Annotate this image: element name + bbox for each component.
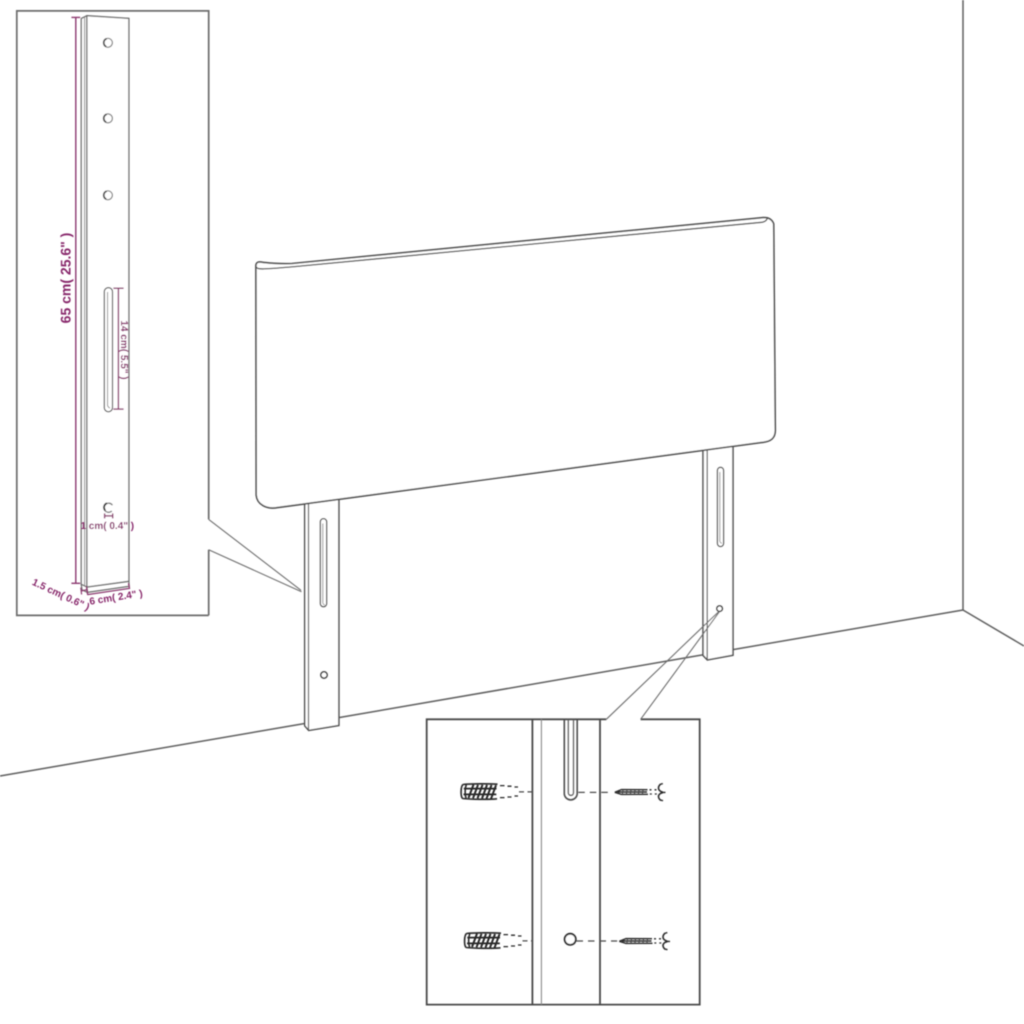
svg-text:1.5 cm( 0.6" ): 1.5 cm( 0.6" ) bbox=[30, 577, 91, 613]
svg-text:1 cm( 0.4" ): 1 cm( 0.4" ) bbox=[80, 521, 134, 532]
svg-text:14 cm( 5.5" ): 14 cm( 5.5" ) bbox=[118, 320, 129, 379]
svg-text:65 cm( 25.6" ): 65 cm( 25.6" ) bbox=[58, 233, 74, 324]
